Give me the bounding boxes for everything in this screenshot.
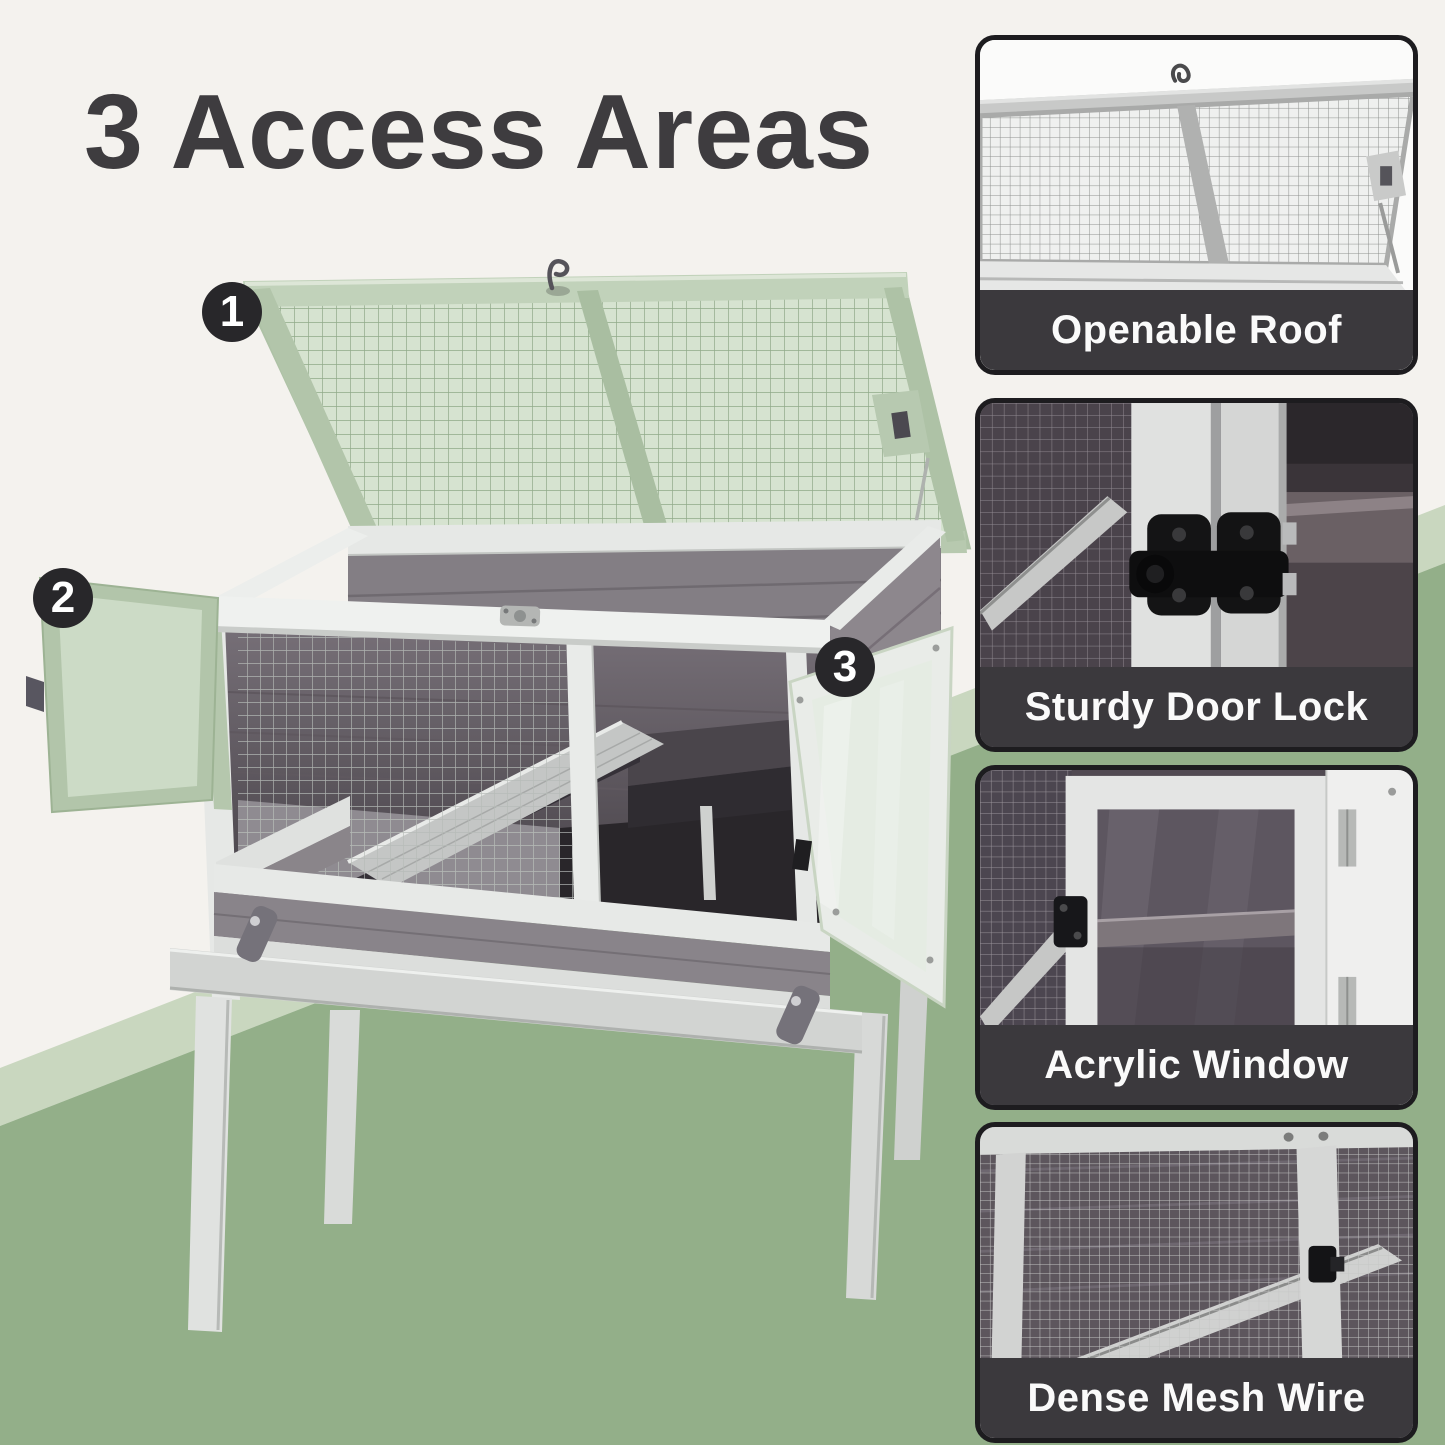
left-door-latch: [26, 676, 44, 712]
callout-2-badge: 2: [33, 568, 93, 628]
page-title: 3 Access Areas: [84, 74, 874, 191]
panel-caption: Openable Roof: [980, 290, 1413, 370]
panel-caption: Dense Mesh Wire: [980, 1358, 1413, 1438]
product-infographic: 3 Access Areas 1 2 3: [0, 0, 1445, 1445]
callout-1-number: 1: [220, 290, 244, 334]
feature-panel-door-lock: Sturdy Door Lock: [975, 398, 1418, 752]
window-hinge-black: [1054, 896, 1088, 947]
callout-2-number: 2: [51, 576, 75, 620]
feature-panel-openable-roof: Openable Roof: [975, 35, 1418, 375]
callout-3-number: 3: [833, 645, 857, 689]
left-top-rail: [216, 528, 368, 607]
openable-roof-lid: [243, 261, 967, 559]
feature-panel-mesh-wire: Dense Mesh Wire: [975, 1122, 1418, 1443]
top-rail-lock: [500, 605, 541, 626]
callout-3-badge: 3: [815, 637, 875, 697]
panel-caption: Acrylic Window: [980, 1025, 1413, 1105]
panel-caption: Sturdy Door Lock: [980, 667, 1413, 747]
leg-back-left: [324, 1010, 360, 1224]
feature-panel-acrylic-window: Acrylic Window: [975, 765, 1418, 1110]
callout-1-badge: 1: [202, 282, 262, 342]
